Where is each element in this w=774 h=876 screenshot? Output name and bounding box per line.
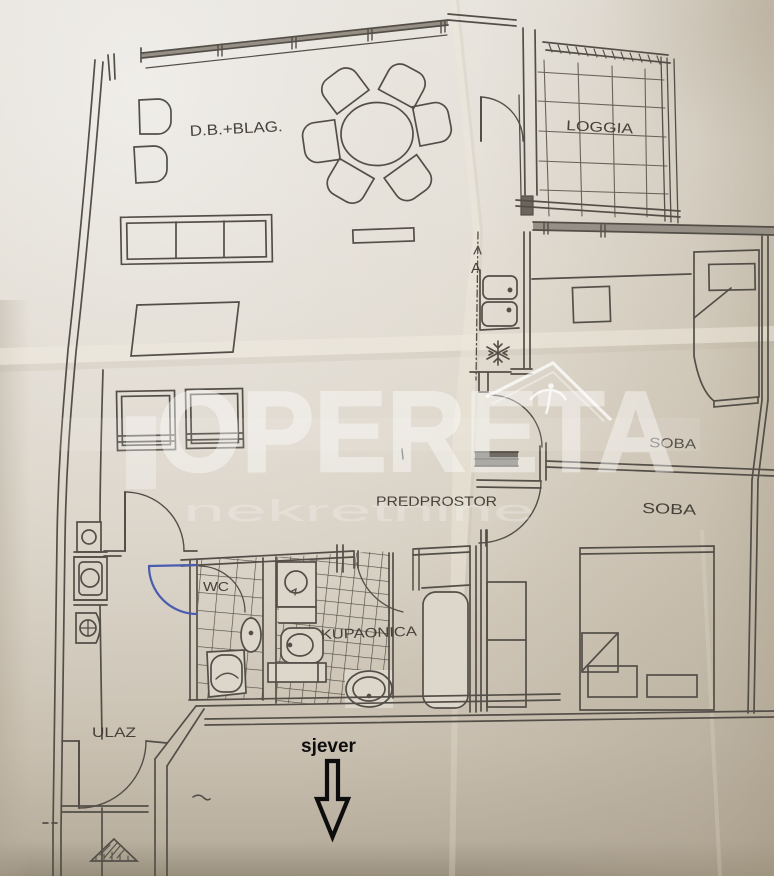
svg-text:SOBA: SOBA	[642, 501, 697, 519]
svg-text:ULAZ: ULAZ	[92, 725, 136, 740]
svg-text:OPERETA: OPERETA	[157, 369, 675, 496]
svg-text:nekretnine: nekretnine	[183, 493, 535, 528]
svg-text:WC: WC	[203, 580, 229, 594]
svg-text:sjever: sjever	[301, 736, 357, 757]
